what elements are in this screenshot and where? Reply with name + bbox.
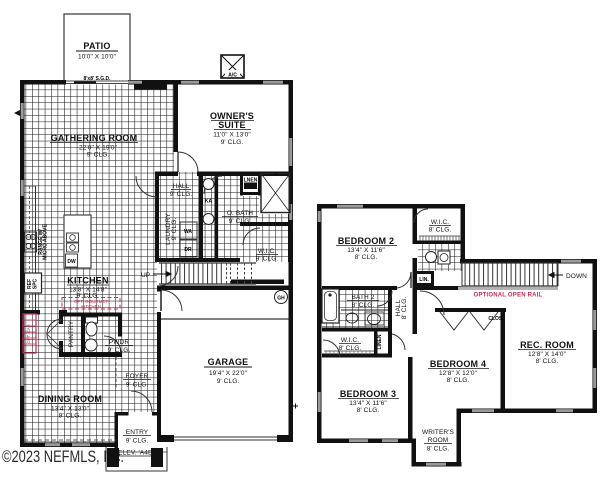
svg-text:A/C: A/C: [228, 73, 237, 79]
svg-text:9' CLG.: 9' CLG.: [87, 152, 110, 159]
svg-text:9' CLG.: 9' CLG.: [221, 139, 244, 146]
svg-text:GATHERING ROOM: GATHERING ROOM: [51, 133, 138, 143]
svg-text:REC. ROOM: REC. ROOM: [520, 340, 574, 350]
svg-text:O. BATH: O. BATH: [227, 210, 253, 217]
svg-text:OPT. CAB: OPT. CAB: [26, 324, 31, 343]
svg-text:W.I.C.: W.I.C.: [341, 337, 359, 344]
svg-text:9' CLG.: 9' CLG.: [59, 413, 82, 420]
svg-text:MICRO ABOVE: MICRO ABOVE: [43, 224, 49, 260]
svg-text:12'8" X 12'0": 12'8" X 12'0": [439, 370, 478, 377]
svg-text:9' CLG.: 9' CLG.: [170, 191, 193, 198]
svg-text:DR: DR: [184, 247, 192, 253]
svg-text:9' CLG.: 9' CLG.: [229, 218, 252, 225]
svg-text:W.I.C.: W.I.C.: [258, 248, 276, 255]
svg-text:22'0" X 19'0": 22'0" X 19'0": [79, 145, 118, 152]
svg-text:ROOM: ROOM: [428, 437, 449, 444]
svg-text:13'4" X 13'0": 13'4" X 13'0": [51, 406, 90, 413]
svg-text:9' CLG.: 9' CLG.: [108, 347, 131, 354]
svg-text:8' CLG.: 8' CLG.: [427, 446, 450, 453]
svg-text:LNEN: LNEN: [244, 178, 258, 184]
svg-text:SPC: SPC: [33, 278, 39, 289]
svg-text:13'4" X 11'6": 13'4" X 11'6": [347, 247, 385, 254]
svg-text:WRITER'S: WRITER'S: [422, 429, 455, 436]
svg-text:10'0" X 10'0": 10'0" X 10'0": [78, 54, 117, 61]
svg-text:W.I.C.: W.I.C.: [431, 219, 449, 226]
svg-text:8' CLG.: 8' CLG.: [357, 407, 380, 414]
svg-text:BEDROOM 2: BEDROOM 2: [338, 236, 394, 246]
svg-text:8' CLG.: 8' CLG.: [536, 358, 559, 365]
svg-text:9' CLG.: 9' CLG.: [171, 218, 178, 241]
svg-text:DINING ROOM: DINING ROOM: [38, 394, 102, 404]
svg-text:KITCHEN: KITCHEN: [81, 304, 101, 309]
svg-text:11'0" X 13'0": 11'0" X 13'0": [213, 132, 251, 139]
svg-text:WA: WA: [184, 229, 192, 235]
svg-text:GARAGE: GARAGE: [208, 357, 249, 367]
svg-text:PATIO: PATIO: [83, 41, 110, 51]
svg-text:BEDROOM 3: BEDROOM 3: [340, 389, 396, 399]
svg-text:8' CLG.: 8' CLG.: [355, 254, 378, 261]
svg-text:SUITE: SUITE: [218, 120, 246, 130]
svg-text:LINEN: LINEN: [377, 334, 383, 349]
svg-text:UP: UP: [141, 272, 150, 279]
svg-text:©2023 NEFMLS, Inc.: ©2023 NEFMLS, Inc.: [2, 447, 124, 466]
svg-text:DOWN: DOWN: [566, 273, 587, 280]
svg-text:BEDROOM 4: BEDROOM 4: [430, 359, 486, 369]
svg-text:HALL: HALL: [173, 183, 190, 190]
svg-text:OPTIONAL OPEN RAIL: OPTIONAL OPEN RAIL: [474, 293, 543, 299]
svg-text:KITCHEN: KITCHEN: [67, 276, 108, 286]
svg-text:DW: DW: [67, 259, 76, 265]
svg-text:19'4" X 22'0": 19'4" X 22'0": [209, 370, 248, 377]
svg-text:9' CLG.: 9' CLG.: [256, 256, 279, 263]
svg-text:8' CLG.: 8' CLG.: [447, 377, 470, 384]
svg-text:8' CLG.: 8' CLG.: [352, 302, 375, 309]
svg-text:9' CLG.: 9' CLG.: [126, 382, 149, 389]
svg-text:PWDR: PWDR: [109, 339, 129, 346]
svg-text:BATH 2: BATH 2: [352, 294, 375, 301]
svg-text:13'4" X 11'6": 13'4" X 11'6": [349, 400, 387, 407]
svg-text:FOYER: FOYER: [126, 373, 149, 380]
svg-text:12'8" X 14'0": 12'8" X 14'0": [528, 351, 567, 358]
svg-text:8' CLG.: 8' CLG.: [429, 227, 452, 234]
svg-text:ENTRY: ENTRY: [126, 429, 149, 436]
svg-text:CLOS.: CLOS.: [488, 316, 504, 322]
svg-text:GH: GH: [277, 296, 285, 302]
svg-text:9' CLG.: 9' CLG.: [217, 378, 240, 385]
svg-text:LIN.: LIN.: [419, 277, 429, 283]
svg-text:8' CLG.: 8' CLG.: [401, 297, 408, 320]
svg-text:9' CLG.: 9' CLG.: [126, 438, 149, 445]
svg-text:PANTRY: PANTRY: [68, 320, 75, 347]
svg-text:KA: KA: [205, 199, 213, 205]
